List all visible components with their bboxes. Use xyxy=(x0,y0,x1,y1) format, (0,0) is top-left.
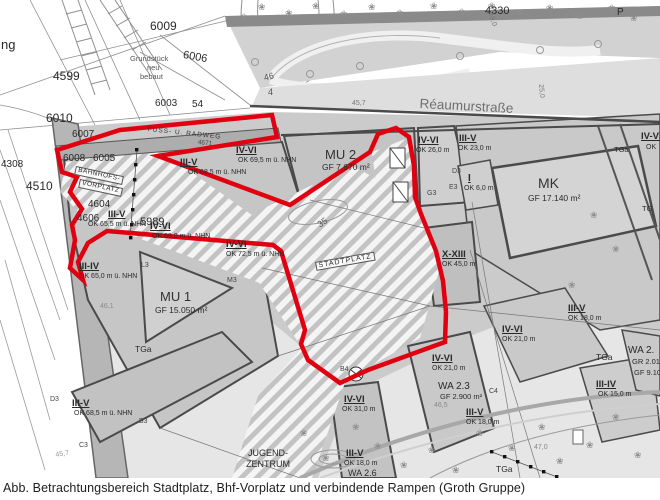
svg-text:❀: ❀ xyxy=(634,450,642,460)
svg-text:❀: ❀ xyxy=(430,1,438,11)
svg-text:❀: ❀ xyxy=(546,3,554,13)
svg-text:❀: ❀ xyxy=(452,465,460,475)
svg-text:❀: ❀ xyxy=(458,7,466,17)
svg-text:❀: ❀ xyxy=(300,428,308,438)
site-plan-map: ❀❀❀ ❀❀❀ ❀❀❀ ❀❀❀ ❀❀❀ ❀❀❀ ❀❀❀ ❀❀❀ ❀❀❀ ❀❀❀ … xyxy=(0,0,660,478)
svg-text:❀: ❀ xyxy=(576,11,584,21)
svg-text:❀: ❀ xyxy=(488,1,496,11)
svg-text:❀: ❀ xyxy=(586,440,594,450)
svg-text:❀: ❀ xyxy=(400,460,408,470)
svg-text:❀: ❀ xyxy=(428,445,436,455)
svg-text:❀: ❀ xyxy=(590,210,598,220)
svg-text:❀: ❀ xyxy=(538,422,546,432)
svg-text:❀: ❀ xyxy=(340,9,348,19)
svg-text:❀: ❀ xyxy=(568,280,576,290)
svg-text:❀: ❀ xyxy=(556,456,564,466)
svg-text:❀: ❀ xyxy=(312,1,320,11)
svg-text:❀: ❀ xyxy=(322,453,330,463)
svg-text:❀: ❀ xyxy=(608,3,616,13)
svg-text:❀: ❀ xyxy=(258,2,266,12)
svg-text:❀: ❀ xyxy=(240,12,248,22)
svg-text:❀: ❀ xyxy=(368,2,376,12)
figure: ❀❀❀ ❀❀❀ ❀❀❀ ❀❀❀ ❀❀❀ ❀❀❀ ❀❀❀ ❀❀❀ ❀❀❀ ❀❀❀ … xyxy=(0,0,660,500)
svg-text:❀: ❀ xyxy=(516,8,524,18)
svg-text:❀: ❀ xyxy=(374,441,382,451)
svg-text:❀: ❀ xyxy=(352,422,360,432)
svg-text:❀: ❀ xyxy=(630,13,638,23)
svg-text:❀: ❀ xyxy=(508,443,516,453)
svg-text:❀: ❀ xyxy=(396,8,404,18)
svg-text:❀: ❀ xyxy=(476,428,484,438)
svg-text:❀: ❀ xyxy=(612,412,620,422)
caption: Abb. Betrachtungsbereich Stadtplatz, Bhf… xyxy=(3,481,657,495)
svg-text:❀: ❀ xyxy=(612,244,620,254)
svg-text:❀: ❀ xyxy=(285,8,293,18)
